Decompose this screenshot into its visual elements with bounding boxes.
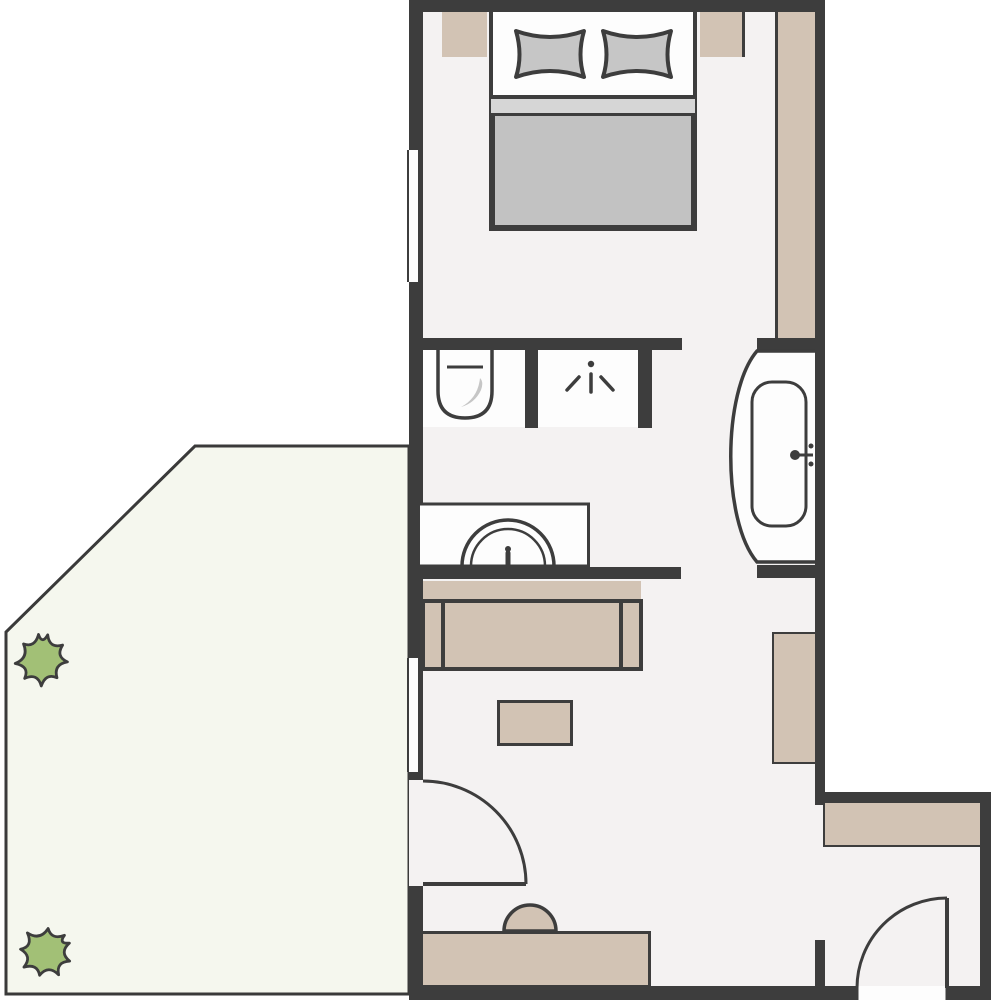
wall-tub-niche-bottom bbox=[757, 565, 815, 578]
floor-plan-page: { "diagram": { "kind": "apartment-floor-… bbox=[0, 0, 991, 1000]
sofa-armrest-right bbox=[623, 603, 639, 667]
bed-blanket bbox=[492, 113, 694, 228]
sofa-seat bbox=[445, 603, 619, 667]
coffee-table bbox=[497, 700, 573, 746]
sideboard bbox=[823, 803, 980, 847]
wall-entrance-right bbox=[980, 792, 991, 1000]
sofa bbox=[421, 599, 643, 671]
living-room-window bbox=[407, 658, 420, 772]
terrace-outline bbox=[6, 446, 409, 994]
bedroom-window bbox=[407, 150, 420, 282]
wall-entrance-top bbox=[815, 792, 991, 803]
left-nightstand bbox=[442, 12, 487, 57]
right-nightstand bbox=[700, 12, 745, 57]
wall-top bbox=[409, 0, 825, 12]
wall-bathroom-living bbox=[409, 567, 681, 579]
sofa-armrest-left bbox=[425, 603, 441, 667]
wardrobe bbox=[775, 12, 815, 338]
sofa-back bbox=[421, 581, 641, 600]
wall-bottom-right bbox=[947, 986, 991, 1000]
wall-shower-left bbox=[525, 348, 538, 428]
terrace-door-opening bbox=[409, 780, 423, 886]
bed-sheet-band bbox=[491, 99, 695, 113]
tv-board bbox=[772, 632, 815, 764]
bottom-counter bbox=[418, 931, 651, 988]
wall-stub-entrance bbox=[815, 940, 825, 990]
wall-bedroom-bathroom-right bbox=[757, 338, 815, 350]
wall-shower-right bbox=[638, 348, 652, 428]
wall-right-upper bbox=[815, 0, 825, 805]
wall-bottom-main bbox=[409, 986, 857, 1000]
